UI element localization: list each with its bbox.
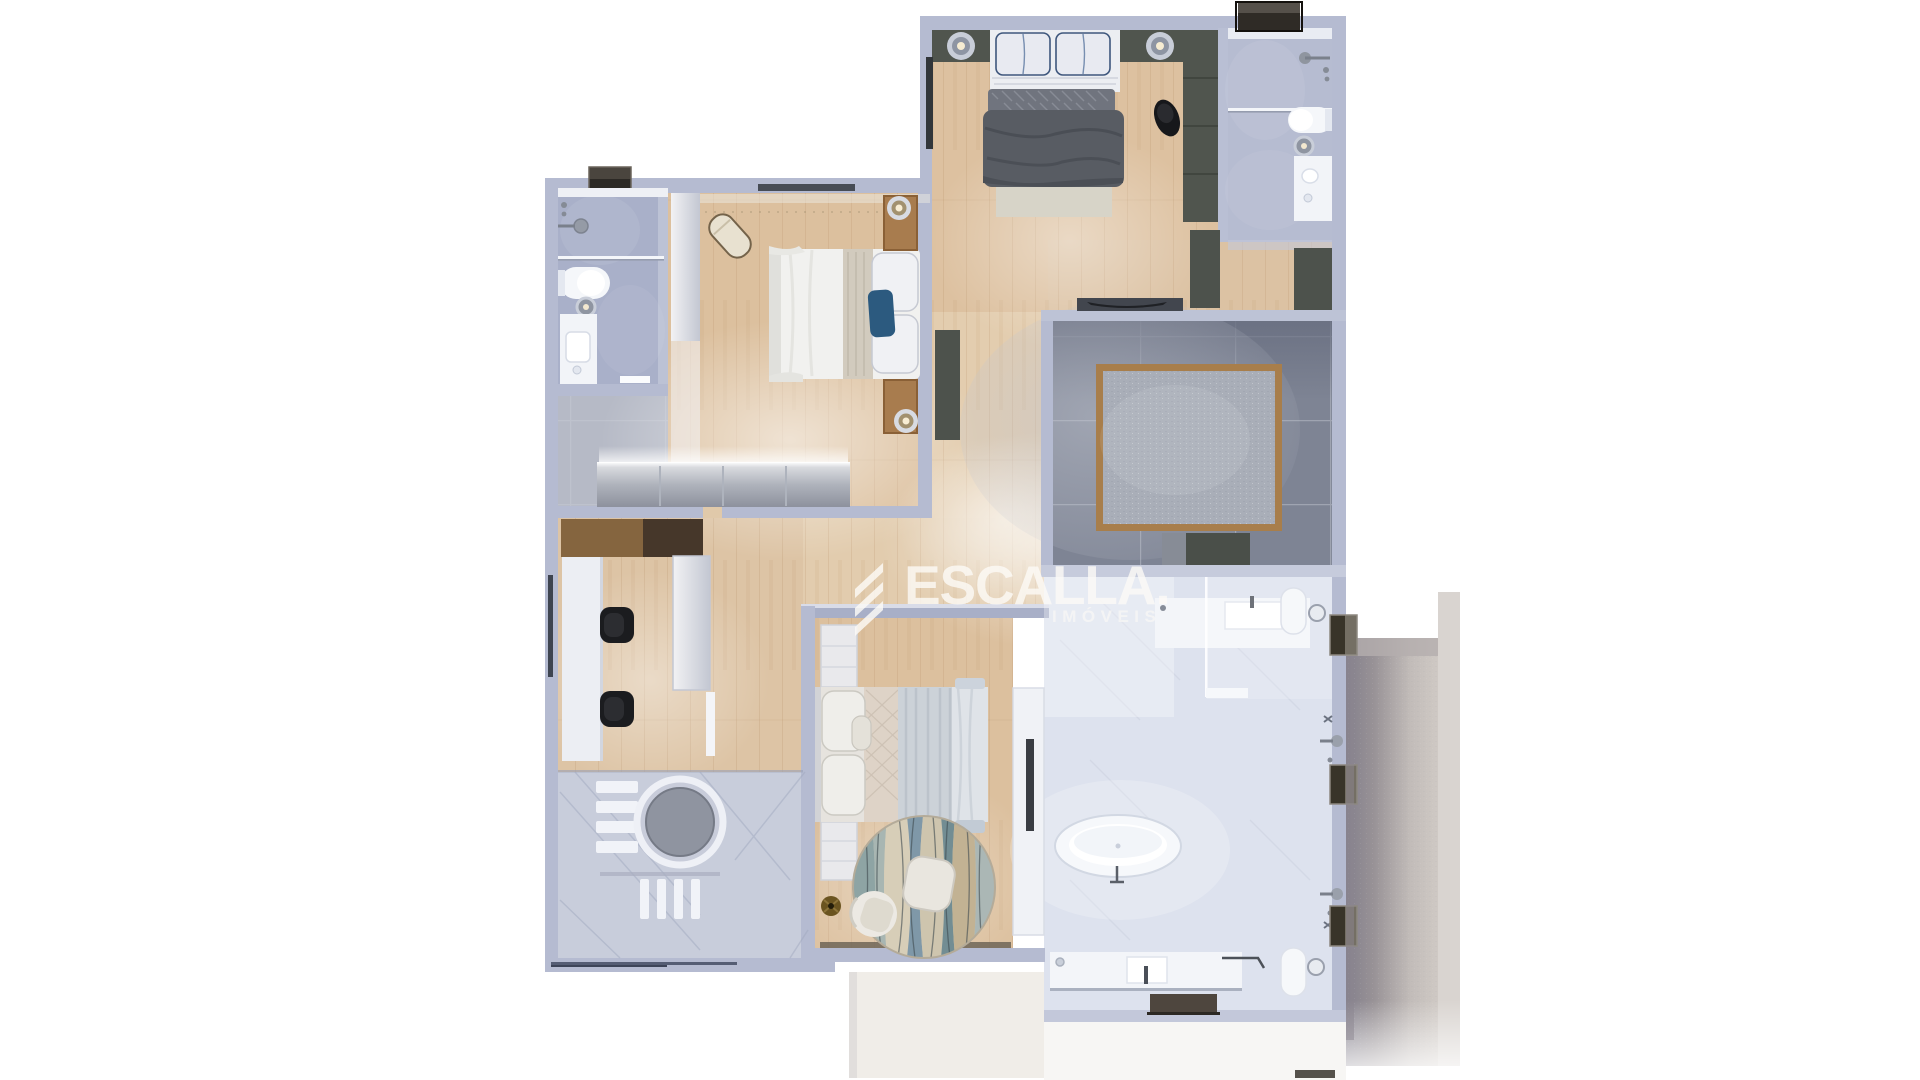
svg-text:IMÓVEIS: IMÓVEIS [1052,607,1161,626]
